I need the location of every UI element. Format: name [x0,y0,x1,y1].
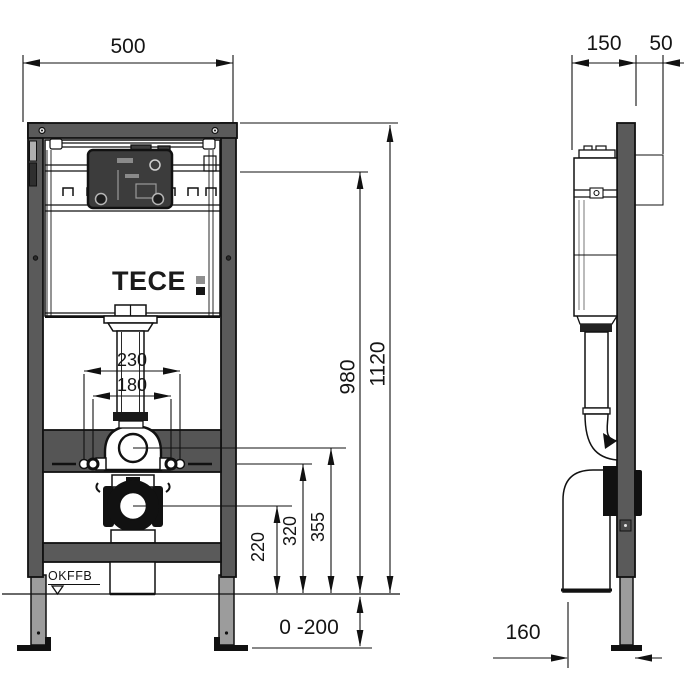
dim-220-label: 220 [249,532,267,562]
flush-access-unit [88,145,172,208]
dim-355-label: 355 [309,512,327,542]
side-cistern [574,146,617,332]
dim-150-label: 150 [577,33,631,54]
front-view [2,55,400,651]
dim-leg-adjustment-label: 0 -200 [266,617,352,638]
floor-level-okffb-label: OKFFB [48,570,100,585]
technical-drawing-page: 500 150 50 1120 980 230 180 355 320 220 … [0,0,700,700]
side-wall-box [635,155,663,205]
side-drain-bend [561,466,617,592]
tece-logo-colon-bottom-square [196,287,205,295]
dim-230-label: 230 [104,351,160,369]
drain-bend-front [96,475,169,543]
drawing-linework [0,0,700,700]
floor-marker [2,586,400,594]
dim-160-label: 160 [494,622,552,643]
dim-320-label: 320 [281,516,299,546]
dim-980-label: 980 [338,359,359,394]
dim-1120-label: 1120 [368,341,389,386]
side-flush-pipe [583,332,617,460]
dim-50-label: 50 [637,33,685,54]
tece-logo-colon-top-square [196,276,205,284]
side-view [493,55,684,668]
tece-logo-text: TECE [112,268,196,295]
bracket-crossbar [43,412,221,472]
dim-500-label: 500 [93,36,163,57]
dim-180-label: 180 [104,376,160,394]
